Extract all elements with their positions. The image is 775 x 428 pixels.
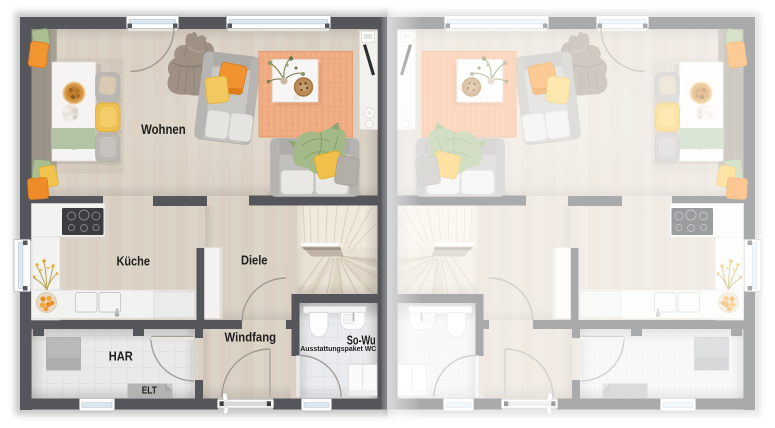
svg-text:HAR: HAR [109,349,134,364]
svg-text:Diele: Diele [241,253,268,268]
svg-text:ELT: ELT [142,385,157,396]
svg-text:Windfang: Windfang [225,331,277,345]
svg-text:Küche: Küche [116,253,150,268]
svg-text:Ausstattungspaket WC: Ausstattungspaket WC [300,344,376,353]
svg-text:Wohnen: Wohnen [141,122,186,137]
